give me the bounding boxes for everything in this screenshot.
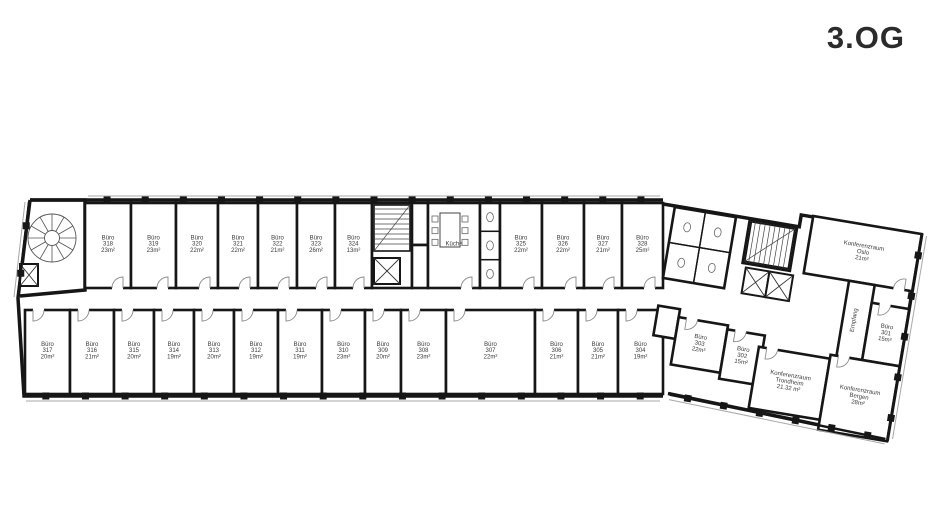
window-pier <box>142 197 149 204</box>
window-pier <box>561 197 568 204</box>
buero-327-label: Büro32721m² <box>596 235 610 254</box>
window-pier <box>82 393 89 400</box>
window-pier <box>359 393 366 400</box>
buero-309-label: Büro30920m² <box>376 342 390 361</box>
window-pier <box>23 222 30 229</box>
buero-317-label: Büro31720m² <box>41 342 55 361</box>
buero-320-label: Büro32022m² <box>190 235 204 254</box>
door-gap <box>330 308 341 312</box>
buero-303: Büro30322m² <box>671 315 729 373</box>
window-pier <box>557 393 564 400</box>
buero-326-label: Büro32622m² <box>556 235 570 254</box>
door-gap <box>242 308 253 312</box>
window-pier <box>792 416 800 424</box>
elevator-annex-2 <box>765 271 793 301</box>
buero-323: Büro32326m² <box>297 203 335 290</box>
buero-323-label: Büro32326m² <box>309 235 323 254</box>
shaft-a-walls <box>412 203 428 245</box>
door-gap <box>586 308 597 312</box>
door-gap <box>112 286 123 290</box>
buero-308-label: Büro30823m² <box>417 342 431 361</box>
window-pier <box>637 197 644 204</box>
buero-307-label: Büro30722m² <box>484 342 498 361</box>
door-gap <box>33 308 44 312</box>
window-pier <box>104 197 111 204</box>
window-pier <box>332 197 339 204</box>
buero-328: Büro32825m² <box>622 203 663 290</box>
window-pier <box>523 197 530 204</box>
door-gap <box>565 286 576 290</box>
door-gap <box>278 286 289 290</box>
spiral-staircase <box>28 214 76 262</box>
shaft-b-walls <box>412 245 428 288</box>
window-pier <box>180 197 187 204</box>
buero-310: Büro31023m² <box>322 308 365 394</box>
buero-305-label: Büro30521m² <box>591 342 605 361</box>
buero-313-label: Büro31320m² <box>207 342 221 361</box>
buero-306: Büro30621m² <box>535 308 578 394</box>
shaft-a <box>412 203 428 245</box>
window-pier <box>756 409 764 417</box>
window-pier <box>399 393 406 400</box>
door-gap <box>239 286 250 290</box>
window-pier <box>901 333 909 341</box>
door-gap <box>157 286 168 290</box>
shaft-b <box>412 245 428 288</box>
door-gap <box>353 286 364 290</box>
buero-313: Büro31320m² <box>194 308 234 394</box>
window-pier <box>887 414 895 422</box>
window-pier <box>256 197 263 204</box>
door-gap <box>162 308 173 312</box>
buero-326: Büro32622m² <box>542 203 584 290</box>
window-pier <box>907 292 915 300</box>
window-pier <box>485 197 492 204</box>
buero-322-label: Büro32221m² <box>271 235 285 254</box>
buero-319: Büro31923m² <box>131 203 176 290</box>
window-pier <box>637 393 644 400</box>
buero-309: Büro30920m² <box>365 308 401 394</box>
buero-314: Büro31419m² <box>154 308 194 394</box>
buero-324-label: Büro32413m² <box>347 235 361 254</box>
door-gap <box>603 286 614 290</box>
window-pier <box>161 393 168 400</box>
window-pier <box>320 393 327 400</box>
door-gap <box>644 286 655 290</box>
door-gap <box>199 286 210 290</box>
buero-306-label: Büro30621m² <box>550 342 564 361</box>
window-pier <box>17 270 24 277</box>
door-gap <box>373 308 384 312</box>
door-gap <box>461 286 472 290</box>
buero-316-label: Büro31621m² <box>85 342 99 361</box>
buero-311: Büro31119m² <box>278 308 322 394</box>
window-pier <box>720 402 728 410</box>
wc-mid-walls <box>480 203 500 288</box>
window-pier <box>42 393 49 400</box>
window-pier <box>447 197 454 204</box>
window-pier <box>518 393 525 400</box>
buero-321: Büro32122m² <box>218 203 258 290</box>
door-gap <box>316 286 327 290</box>
door-gap <box>122 308 133 312</box>
window-pier <box>894 373 902 381</box>
buero-327: Büro32721m² <box>584 203 622 290</box>
window-pier <box>439 393 446 400</box>
window-pier <box>294 197 301 204</box>
door-gap <box>454 308 465 312</box>
buero-314-label: Büro31419m² <box>167 342 181 361</box>
floorplan-svg: Büro31823m²Büro31923m²Büro32022m²Büro321… <box>0 0 933 514</box>
door-gap <box>409 308 420 312</box>
window-pier <box>597 393 604 400</box>
buero-305: Büro30521m² <box>578 308 618 394</box>
buero-312: Büro31219m² <box>234 308 278 394</box>
window-pier <box>240 393 247 400</box>
annex-wing: KonferenzraumOslo21m²EmpfangBüro30115m²B… <box>630 191 927 445</box>
window-pier <box>478 393 485 400</box>
buero-304-label: Büro30419m² <box>634 342 648 361</box>
buero-325: Büro32522m² <box>500 203 542 290</box>
konferenzraum-trondheim: KonferenzraumTrondheim21.32 m² <box>749 345 831 420</box>
main-wing: Büro31823m²Büro31923m²Büro32022m²Büro321… <box>14 196 663 401</box>
wc-mid <box>480 203 500 288</box>
staircase-annex <box>745 222 795 269</box>
window-pier <box>218 197 225 204</box>
floor-plan-page: 3.OG Büro31823m²Büro31923m²Büro32022m²Bü… <box>0 0 933 514</box>
door-gap <box>523 286 534 290</box>
buero-316: Büro31621m² <box>70 308 114 394</box>
window-pier <box>599 197 606 204</box>
door-gap <box>626 308 637 312</box>
buero-307: Büro30722m² <box>446 308 535 394</box>
window-pier <box>827 424 835 432</box>
window-pier <box>280 393 287 400</box>
buero-328-label: Büro32825m² <box>636 235 650 254</box>
buero-310-label: Büro31023m² <box>337 342 351 361</box>
window-pier <box>409 197 416 204</box>
door-gap <box>543 308 554 312</box>
window-pier <box>122 393 129 400</box>
buero-324: Büro32413m² <box>335 203 372 290</box>
buero-319-label: Büro31923m² <box>147 235 161 254</box>
door-gap <box>286 308 297 312</box>
window-pier <box>914 251 922 259</box>
buero-315: Büro31520m² <box>114 308 154 394</box>
buero-320: Büro32022m² <box>176 203 218 290</box>
buero-312-label: Büro31219m² <box>249 342 263 361</box>
window-pier <box>863 431 871 439</box>
buero-321-label: Büro32122m² <box>231 235 245 254</box>
buero-325-label: Büro32522m² <box>514 235 528 254</box>
window-pier <box>201 393 208 400</box>
buero-318: Büro31823m² <box>85 203 131 290</box>
door-gap <box>78 308 89 312</box>
door-gap <box>202 308 213 312</box>
buero-322: Büro32221m² <box>258 203 297 290</box>
window-pier <box>371 197 378 204</box>
buero-317: Büro31720m² <box>25 308 70 394</box>
elevator-mid <box>374 258 400 284</box>
buero-318-label: Büro31823m² <box>101 235 115 254</box>
buero-308: Büro30823m² <box>401 308 446 394</box>
staircase-mid <box>374 205 410 251</box>
window-pier <box>684 394 692 402</box>
buero-315-label: Büro31520m² <box>127 342 141 361</box>
